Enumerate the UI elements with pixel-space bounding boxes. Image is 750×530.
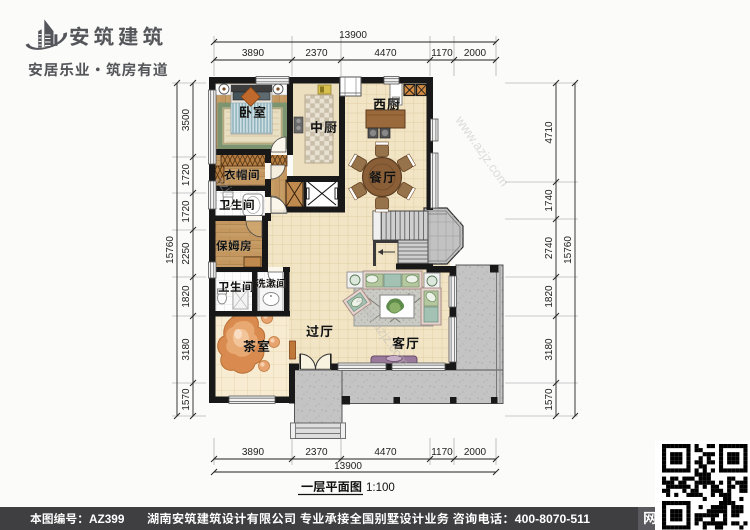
svg-text:2000: 2000	[464, 447, 487, 458]
svg-text:2250: 2250	[181, 242, 192, 265]
svg-text:3890: 3890	[242, 48, 265, 59]
svg-text:1820: 1820	[181, 285, 192, 308]
svg-text:3890: 3890	[242, 447, 265, 458]
svg-text:1720: 1720	[181, 200, 192, 223]
svg-text:1170: 1170	[431, 48, 453, 59]
svg-text:3180: 3180	[544, 338, 555, 361]
svg-text:1740: 1740	[544, 189, 555, 212]
svg-text:1570: 1570	[544, 388, 555, 411]
svg-text:3180: 3180	[181, 338, 192, 361]
svg-text:13900: 13900	[334, 461, 362, 472]
svg-text:1720: 1720	[181, 163, 192, 186]
svg-text:2740: 2740	[544, 236, 555, 259]
svg-text:1570: 1570	[181, 388, 192, 411]
svg-text:1820: 1820	[544, 285, 555, 308]
svg-text:2000: 2000	[464, 48, 487, 59]
svg-text:15760: 15760	[563, 236, 574, 264]
svg-text:3500: 3500	[181, 108, 192, 131]
svg-text:www.azjz.com: www.azjz.com	[452, 112, 512, 189]
svg-text:13900: 13900	[339, 30, 367, 41]
svg-text:4710: 4710	[544, 121, 555, 144]
svg-text:2370: 2370	[305, 48, 328, 59]
svg-text:AZ399: AZ399	[89, 512, 125, 526]
svg-text:1170: 1170	[431, 447, 453, 458]
svg-text:4470: 4470	[374, 48, 397, 59]
svg-text:400-8070-511: 400-8070-511	[515, 512, 590, 526]
svg-text:4470: 4470	[374, 447, 397, 458]
svg-text:2370: 2370	[305, 447, 328, 458]
svg-text:1:100: 1:100	[366, 482, 395, 494]
svg-text:15760: 15760	[165, 236, 176, 264]
